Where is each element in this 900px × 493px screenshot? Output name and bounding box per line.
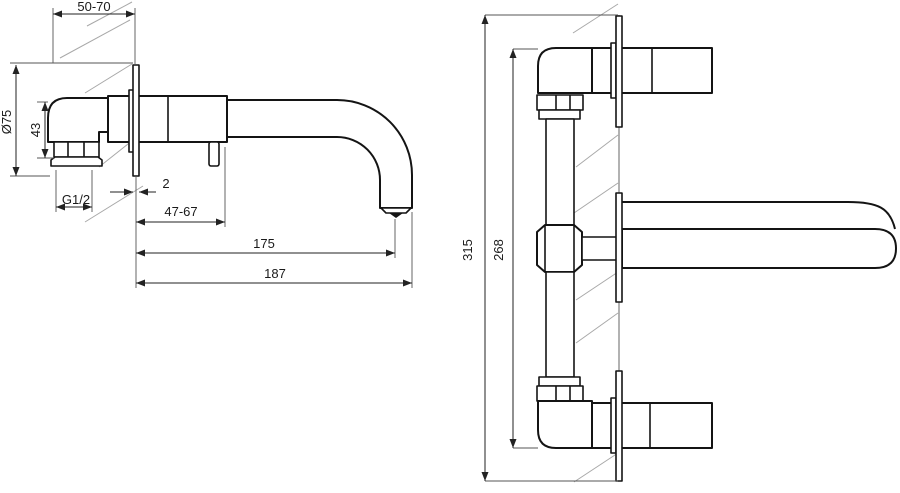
spout-stub-pipe [582, 237, 617, 260]
dim-label-body-height: 43 [28, 123, 43, 137]
escutcheon-plate-side [133, 65, 139, 176]
dim-label-pipe-length: 268 [491, 239, 506, 261]
washer-bottom-front [539, 377, 580, 386]
check-valve-key [209, 142, 219, 166]
side-view: 50-70 Ø75 43 G1/2 2 47-67 175 187 [0, 0, 412, 288]
dim-label-wall-depth: 50-70 [77, 0, 110, 14]
dim-label-thread: G1/2 [62, 192, 90, 207]
elbow-top-front [538, 48, 592, 93]
riser-pipe-top [546, 119, 574, 225]
dim-label-spout-reach: 175 [253, 236, 275, 251]
escutcheon-plate-middle [616, 193, 622, 302]
handle-body-bottom [592, 403, 712, 448]
escutcheon-plate-top [616, 16, 622, 127]
elbow-side [48, 98, 108, 142]
escutcheon-plate-bottom [616, 371, 622, 481]
dim-label-escutcheon-diameter: Ø75 [0, 110, 14, 135]
dim-label-rough-in: 47-67 [164, 204, 197, 219]
spout-bend-silhouette [622, 202, 895, 229]
front-view: 315 268 [460, 4, 896, 482]
faucet-installation-drawing: 50-70 Ø75 43 G1/2 2 47-67 175 187 [0, 0, 900, 493]
riser-pipe-bottom [546, 272, 574, 377]
hex-nut-bottom-front [537, 386, 583, 401]
dim-label-overall-height: 315 [460, 239, 475, 261]
elbow-bottom-front [538, 401, 592, 448]
hex-nut-top-front [537, 95, 583, 110]
hex-union-center [537, 225, 582, 272]
dim-label-plate-thickness: 2 [162, 176, 169, 191]
aerator-outlet [389, 213, 403, 218]
washer-top-front [539, 110, 580, 119]
spout-front-outline [622, 229, 896, 268]
base-flange-side [51, 157, 102, 166]
aerator [381, 208, 411, 213]
hex-nut-side [54, 142, 99, 157]
dim-label-total-reach: 187 [264, 266, 286, 281]
technical-drawing-page: 50-70 Ø75 43 G1/2 2 47-67 175 187 [0, 0, 900, 493]
spout-outline [227, 100, 412, 208]
